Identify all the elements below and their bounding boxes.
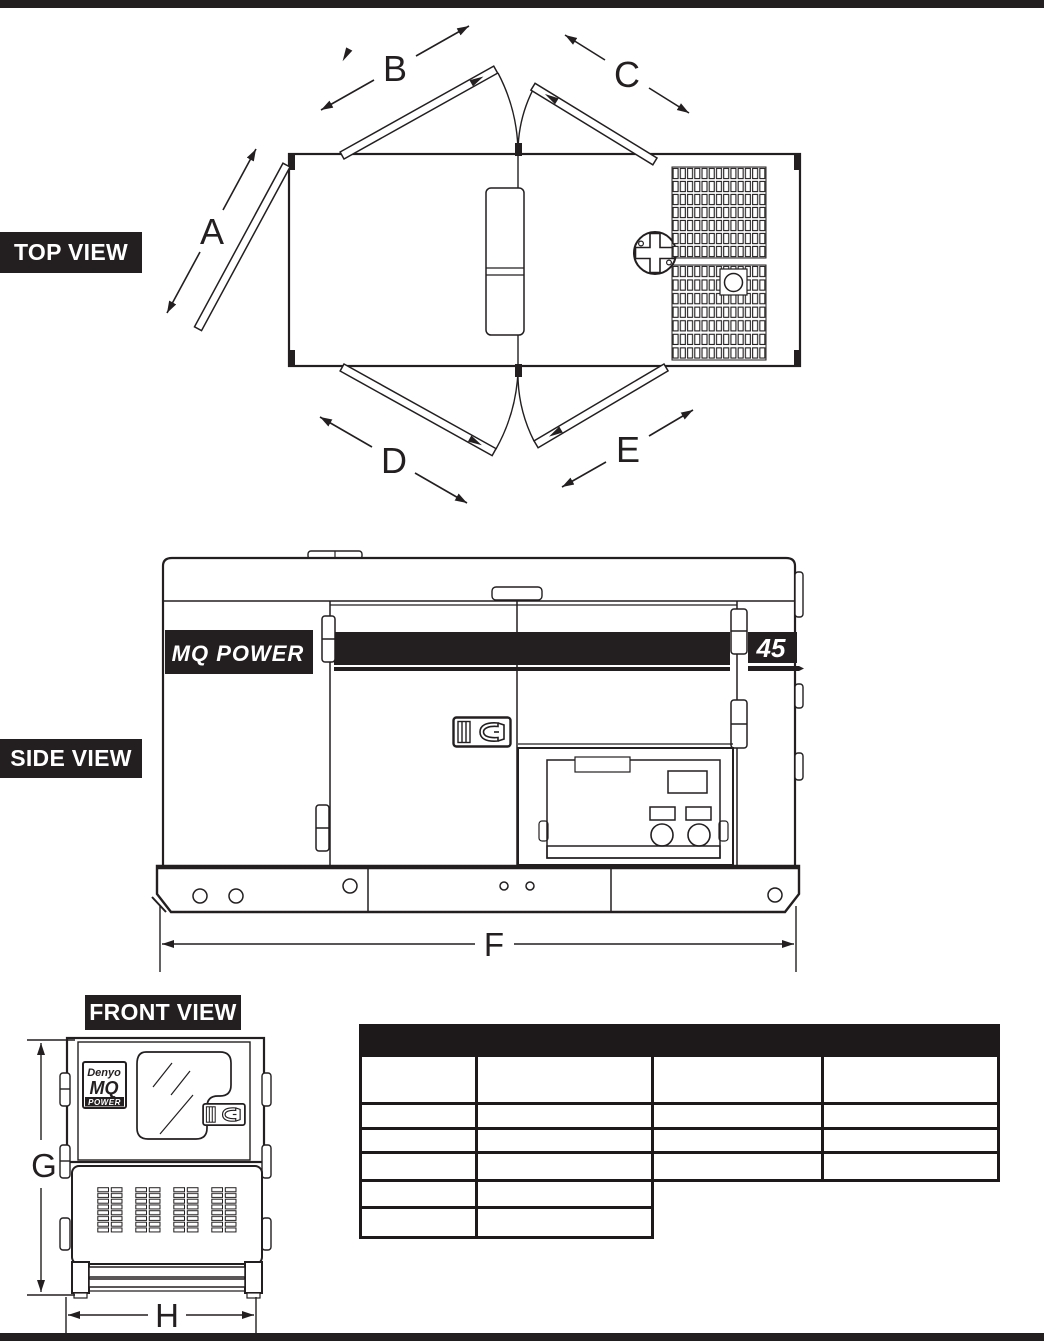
table-cell-empty bbox=[823, 1208, 999, 1238]
side-view-drawing: MQ POWER 45 bbox=[152, 551, 804, 972]
dim-label-d: D bbox=[381, 440, 407, 481]
panel-label-plate bbox=[575, 757, 630, 772]
table-cell bbox=[823, 1104, 999, 1129]
side-view-label-text: SIDE VIEW bbox=[10, 745, 132, 772]
front-view-drawing: Denyo MQ POWER bbox=[27, 1038, 271, 1334]
table-cell bbox=[823, 1129, 999, 1153]
model-number-text: 45 bbox=[756, 633, 786, 663]
vent-grille bbox=[211, 1187, 238, 1233]
top-view-label-text: TOP VIEW bbox=[14, 239, 128, 266]
dim-label-h: H bbox=[155, 1297, 179, 1334]
table-cell-empty bbox=[823, 1181, 999, 1208]
mq-power-logo-text: MQ POWER bbox=[172, 641, 305, 666]
cooling-grille-lower bbox=[672, 265, 766, 360]
front-view-label-text: FRONT VIEW bbox=[89, 999, 236, 1026]
dimensions-table bbox=[359, 1024, 1000, 1239]
table-cell-empty bbox=[653, 1181, 823, 1208]
roof-access-panel bbox=[486, 188, 524, 335]
manual-page: A B C D E MQ PO bbox=[0, 0, 1044, 1341]
door-e-open bbox=[534, 364, 668, 448]
table-row bbox=[361, 1181, 999, 1208]
table-cell bbox=[653, 1056, 823, 1104]
fuel-cap-icon bbox=[725, 274, 743, 292]
front-view-label: FRONT VIEW bbox=[85, 995, 241, 1030]
table-cell bbox=[823, 1153, 999, 1181]
table-cell-empty bbox=[653, 1208, 823, 1238]
side-view-label: SIDE VIEW bbox=[0, 739, 142, 778]
base-skid bbox=[152, 866, 799, 912]
badge-power-text: POWER bbox=[88, 1098, 121, 1107]
door-c-open bbox=[531, 83, 657, 165]
table-cell bbox=[361, 1104, 477, 1129]
door-b-open bbox=[340, 66, 498, 159]
dim-label-e: E bbox=[616, 429, 640, 470]
front-skid bbox=[72, 1262, 262, 1298]
table-header-cell bbox=[361, 1026, 999, 1056]
table-cell bbox=[477, 1181, 653, 1208]
fan-vent-icon bbox=[634, 232, 676, 274]
table-row bbox=[361, 1056, 999, 1104]
door-latch-icon bbox=[203, 1104, 245, 1125]
table-cell bbox=[653, 1153, 823, 1181]
vent-grille bbox=[135, 1187, 162, 1233]
table-cell bbox=[361, 1129, 477, 1153]
table-cell bbox=[477, 1104, 653, 1129]
roof-handle bbox=[492, 587, 542, 600]
badge-mq-text: MQ bbox=[90, 1078, 119, 1098]
dim-label-a: A bbox=[200, 211, 224, 252]
table-cell bbox=[477, 1056, 653, 1104]
dim-label-g: G bbox=[31, 1147, 57, 1184]
table-cell bbox=[361, 1181, 477, 1208]
table-cell bbox=[477, 1129, 653, 1153]
dim-label-f: F bbox=[484, 926, 504, 963]
dim-f-arrow bbox=[160, 906, 796, 972]
brand-stripe: MQ POWER 45 bbox=[165, 630, 804, 674]
top-view-label: TOP VIEW bbox=[0, 232, 142, 273]
table-header-row bbox=[361, 1026, 999, 1056]
table-row bbox=[361, 1129, 999, 1153]
table-cell bbox=[477, 1153, 653, 1181]
top-view-drawing: A B C D E bbox=[167, 26, 800, 503]
table-row bbox=[361, 1208, 999, 1238]
cooling-grille-upper bbox=[672, 167, 766, 258]
table-cell bbox=[361, 1056, 477, 1104]
table-row bbox=[361, 1153, 999, 1181]
denyo-badge: Denyo MQ POWER bbox=[83, 1062, 126, 1108]
table-cell bbox=[823, 1056, 999, 1104]
dim-label-c: C bbox=[614, 54, 640, 95]
vent-section bbox=[72, 1166, 262, 1264]
table-row bbox=[361, 1104, 999, 1129]
table-cell bbox=[477, 1208, 653, 1238]
bottom-border-bar bbox=[0, 1333, 1044, 1341]
dim-label-b: B bbox=[383, 48, 407, 89]
door-latch-icon bbox=[454, 718, 511, 747]
vent-grille bbox=[173, 1187, 200, 1233]
table-cell bbox=[653, 1104, 823, 1129]
table-cell bbox=[361, 1153, 477, 1181]
table-cell bbox=[653, 1129, 823, 1153]
vent-grille bbox=[97, 1187, 124, 1233]
table-cell bbox=[361, 1208, 477, 1238]
side-edge-tabs bbox=[795, 572, 803, 780]
